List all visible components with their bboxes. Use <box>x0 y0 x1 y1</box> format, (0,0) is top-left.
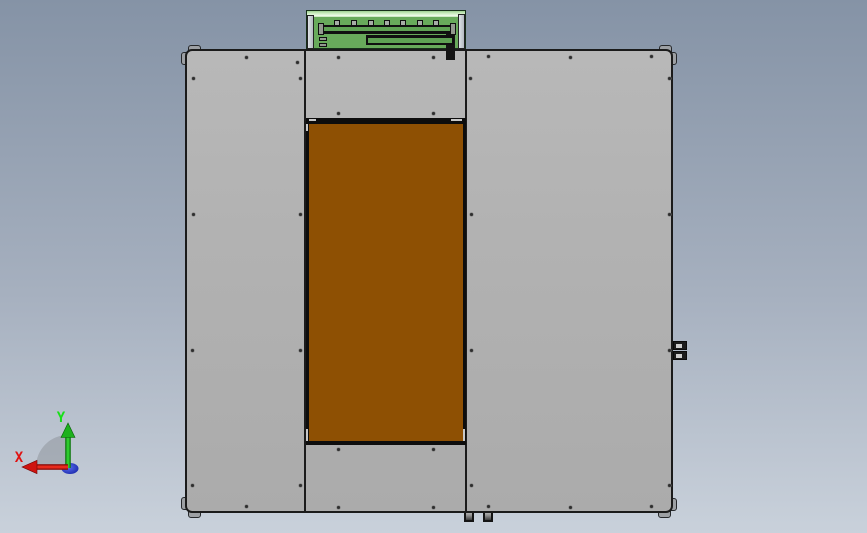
feeder-clamp-tab[interactable] <box>384 20 390 26</box>
side-connector-lower[interactable] <box>673 351 687 360</box>
screw-dot[interactable] <box>245 505 248 508</box>
feeder-post-right[interactable] <box>458 14 465 49</box>
screw-dot[interactable] <box>192 77 195 80</box>
cad-viewport: Y X <box>0 0 867 533</box>
screw-dot[interactable] <box>299 484 302 487</box>
screw-dot[interactable] <box>299 77 302 80</box>
screw-dot[interactable] <box>191 484 194 487</box>
screw-dot[interactable] <box>432 56 435 59</box>
screw-dot[interactable] <box>668 349 671 352</box>
feeder-clamp-tab[interactable] <box>334 20 340 26</box>
screw-dot[interactable] <box>650 55 653 58</box>
screw-dot[interactable] <box>650 505 653 508</box>
screw-dot[interactable] <box>191 349 194 352</box>
screw-dot[interactable] <box>296 61 299 64</box>
orientation-triad[interactable]: Y X <box>10 404 90 489</box>
screw-dot[interactable] <box>432 448 435 451</box>
screw-dot[interactable] <box>470 484 473 487</box>
feeder-rail-upper[interactable] <box>320 25 456 34</box>
door-tick-right-lower <box>463 429 465 441</box>
door-tick-top-left <box>309 119 316 121</box>
door-tick-left-upper <box>306 124 308 131</box>
x-axis-label: X <box>15 450 24 466</box>
screw-dot[interactable] <box>469 77 472 80</box>
screw-dot[interactable] <box>668 213 671 216</box>
screw-dot[interactable] <box>569 506 572 509</box>
triad-plane-fan <box>36 435 68 467</box>
feeder-top-cover-strip[interactable] <box>307 11 465 17</box>
feeder-assembly[interactable] <box>306 10 466 49</box>
screw-dot[interactable] <box>337 56 340 59</box>
connector-pin-icon <box>676 344 682 348</box>
side-connector-upper[interactable] <box>673 341 687 350</box>
y-axis-arrow[interactable] <box>65 436 71 468</box>
screw-dot[interactable] <box>487 55 490 58</box>
feeder-clamp-tab[interactable] <box>351 20 357 26</box>
screw-dot[interactable] <box>192 213 195 216</box>
y-axis-label: Y <box>57 410 66 426</box>
feeder-rail-lower[interactable] <box>366 35 454 45</box>
screw-dot[interactable] <box>245 56 248 59</box>
screw-dot[interactable] <box>337 448 340 451</box>
screw-dot[interactable] <box>432 112 435 115</box>
door-tick-left-lower <box>306 429 308 441</box>
screw-dot[interactable] <box>299 349 302 352</box>
x-axis-arrow[interactable] <box>36 464 68 470</box>
x-axis-arrowhead-icon[interactable] <box>22 460 37 473</box>
screw-dot[interactable] <box>337 506 340 509</box>
feeder-clamp-tab[interactable] <box>433 20 439 26</box>
screw-dot[interactable] <box>337 112 340 115</box>
center-door-panel[interactable] <box>306 118 466 445</box>
screw-dot[interactable] <box>470 349 473 352</box>
screw-dot[interactable] <box>299 213 302 216</box>
connector-pin-icon <box>676 354 682 358</box>
screw-dot[interactable] <box>432 506 435 509</box>
screw-dot[interactable] <box>569 56 572 59</box>
door-tick-top-right <box>451 119 462 121</box>
feeder-post-left[interactable] <box>307 15 314 49</box>
feeder-clamp-tab[interactable] <box>368 20 374 26</box>
rail-end-cap-right <box>450 23 456 35</box>
rail-end-cap-left <box>318 23 324 35</box>
screw-dot[interactable] <box>487 505 490 508</box>
feeder-stub-upper <box>319 37 327 41</box>
screw-dot[interactable] <box>668 77 671 80</box>
feeder-stub-lower <box>319 43 327 47</box>
feeder-clamp-tab[interactable] <box>417 20 423 26</box>
screw-dot[interactable] <box>470 213 473 216</box>
screw-dot[interactable] <box>668 484 671 487</box>
feeder-clamp-tab[interactable] <box>400 20 406 26</box>
